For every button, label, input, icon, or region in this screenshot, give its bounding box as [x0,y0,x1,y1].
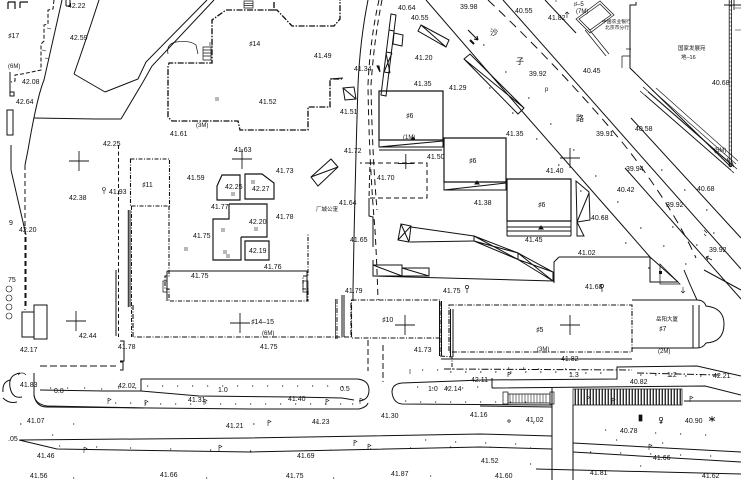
svg-text:42.02: 42.02 [118,383,136,390]
svg-text:地–16: 地–16 [681,53,696,61]
svg-text:41.93: 41.93 [109,189,127,196]
svg-text:♯11: ♯11 [142,182,153,189]
svg-text:42.64: 42.64 [16,99,34,106]
svg-text:40.55: 40.55 [515,8,533,15]
svg-text:41.82: 41.82 [561,356,579,363]
svg-text:41.65: 41.65 [350,237,368,244]
svg-text:41.78: 41.78 [118,344,136,351]
svg-text:41.70: 41.70 [377,175,395,182]
svg-text:41.31: 41.31 [188,397,206,404]
svg-text:♯5: ♯5 [536,327,544,334]
svg-text:42.14: 42.14 [444,386,462,393]
svg-text:41.52: 41.52 [481,458,499,465]
svg-text:41.23: 41.23 [312,419,330,426]
svg-text:42.21: 42.21 [713,373,731,380]
svg-text:41.69: 41.69 [297,453,315,460]
svg-text:41.59: 41.59 [187,175,205,182]
svg-text:40.78: 40.78 [620,428,638,435]
svg-text:41.07: 41.07 [27,418,45,425]
svg-text:40.68: 40.68 [591,215,609,222]
svg-text:41.63: 41.63 [234,147,252,154]
svg-text:(3M): (3M) [537,347,549,353]
svg-text:41.75: 41.75 [260,344,278,351]
svg-text:41.77: 41.77 [211,204,229,211]
svg-text:40.68: 40.68 [712,80,730,87]
svg-text:岳阳大厦: 岳阳大厦 [656,315,679,323]
svg-text:42.25: 42.25 [103,141,121,148]
svg-text:41.61: 41.61 [170,131,188,138]
svg-text:41.56: 41.56 [30,473,48,480]
svg-text:41.73: 41.73 [276,168,294,175]
svg-text:42.38: 42.38 [69,195,87,202]
svg-text:41.81: 41.81 [590,470,608,477]
svg-text:41.75: 41.75 [193,233,211,240]
svg-text:(5M): (5M) [714,148,726,154]
svg-text:41.82: 41.82 [548,15,566,22]
svg-text:42.25: 42.25 [225,184,243,191]
svg-text:41.87: 41.87 [391,471,409,478]
svg-text:39.98: 39.98 [460,4,478,11]
svg-text:42.20: 42.20 [249,219,267,226]
svg-text:41.16: 41.16 [470,412,488,419]
svg-text:40.45: 40.45 [583,68,601,75]
svg-text:(2M): (2M) [658,349,670,355]
svg-text:41.66: 41.66 [653,455,671,462]
svg-text:41.79: 41.79 [345,288,363,295]
svg-text:北京市分行: 北京市分行 [605,24,629,31]
svg-text:41.30: 41.30 [381,413,399,420]
svg-text:42.22: 42.22 [68,3,86,10]
svg-text:(6M): (6M) [8,64,20,70]
svg-text:40.90: 40.90 [685,418,703,425]
svg-text:41.45: 41.45 [525,237,543,244]
svg-text:1.2: 1.2 [667,372,677,379]
svg-text:41.49: 41.49 [314,53,332,60]
svg-text:41.20: 41.20 [415,55,433,62]
svg-text:1.0: 1.0 [428,386,438,393]
svg-text:♯–5: ♯–5 [574,1,584,8]
svg-text:国家发展宛: 国家发展宛 [678,44,706,52]
svg-text:41.64: 41.64 [339,200,357,207]
svg-text:沙: 沙 [490,28,498,37]
svg-text:40.55: 40.55 [411,15,429,22]
svg-text:41.76: 41.76 [264,264,282,271]
svg-text:40.82: 40.82 [630,379,648,386]
svg-text:41.02: 41.02 [578,250,596,257]
svg-text:41.72: 41.72 [344,148,362,155]
svg-text:41.75: 41.75 [443,288,461,295]
svg-text:♯7: ♯7 [659,326,667,333]
svg-text:42.20: 42.20 [19,227,37,234]
svg-text:41.78: 41.78 [276,214,294,221]
svg-text:75: 75 [8,277,16,284]
svg-text:41.02: 41.02 [526,417,544,424]
svg-text:9: 9 [9,220,13,227]
svg-text:42.17: 42.17 [20,347,38,354]
svg-text:♯6: ♯6 [469,158,477,165]
svg-text:41.83: 41.83 [20,382,38,389]
svg-text:0.5: 0.5 [340,386,350,393]
svg-text:子: 子 [516,57,524,66]
svg-text:0.8: 0.8 [54,388,64,395]
svg-text:41.35: 41.35 [506,131,524,138]
svg-text:41.75: 41.75 [286,473,304,480]
svg-text:40.42: 40.42 [617,187,635,194]
svg-text:42.27: 42.27 [252,186,270,193]
svg-text:39.92: 39.92 [529,71,547,78]
svg-text:40.68: 40.68 [697,186,715,193]
svg-text:1.0: 1.0 [218,387,228,394]
svg-text:40.64: 40.64 [398,5,416,12]
svg-text:(1M): (1M) [403,135,415,141]
svg-text:41.34: 41.34 [354,66,372,73]
svg-text:41.75: 41.75 [191,273,209,280]
svg-text:41.51: 41.51 [340,109,358,116]
svg-text:路: 路 [576,113,584,123]
svg-text:41.29: 41.29 [449,85,467,92]
svg-text:厂城公寁: 厂城公寁 [316,205,339,213]
svg-text:(3M): (3M) [196,123,208,129]
svg-text:♯14–15: ♯14–15 [251,319,274,326]
svg-text:41.40: 41.40 [546,168,564,175]
svg-text:39.92: 39.92 [666,202,684,209]
svg-text:40.58: 40.58 [635,126,653,133]
svg-text:41.66: 41.66 [160,472,178,479]
svg-text:41.40: 41.40 [288,396,306,403]
svg-text:1.3: 1.3 [569,372,579,379]
svg-text:41.52: 41.52 [259,99,277,106]
svg-text:♯14: ♯14 [249,41,260,48]
svg-text:39.94: 39.94 [626,166,644,173]
svg-text:♯6: ♯6 [406,113,414,120]
svg-text:41.21: 41.21 [226,423,244,430]
svg-text:39.92: 39.92 [709,247,727,254]
svg-text:42.08: 42.08 [22,79,40,86]
svg-text:42.19: 42.19 [249,248,267,255]
svg-text:41.73: 41.73 [414,347,432,354]
svg-text:(6M): (6M) [262,331,274,337]
svg-text:♯10: ♯10 [382,317,393,324]
svg-text:.05: .05 [8,436,18,443]
svg-text:♯6: ♯6 [538,202,546,209]
svg-text:41.68: 41.68 [585,284,603,291]
svg-text:41.50: 41.50 [427,154,445,161]
svg-text:41.35: 41.35 [414,81,432,88]
svg-text:42.11: 42.11 [471,377,488,384]
svg-text:41.46: 41.46 [37,453,55,460]
svg-text:42.59: 42.59 [70,35,88,42]
svg-text:42.44: 42.44 [79,333,97,340]
svg-text:中国农业银行: 中国农业银行 [602,18,631,25]
svg-text:41.60: 41.60 [495,473,513,480]
svg-text:♯17: ♯17 [8,33,19,40]
svg-text:41.38: 41.38 [474,200,492,207]
svg-text:41.62: 41.62 [702,473,720,480]
svg-text:(7M): (7M) [576,9,588,15]
svg-text:39.91: 39.91 [596,131,614,138]
